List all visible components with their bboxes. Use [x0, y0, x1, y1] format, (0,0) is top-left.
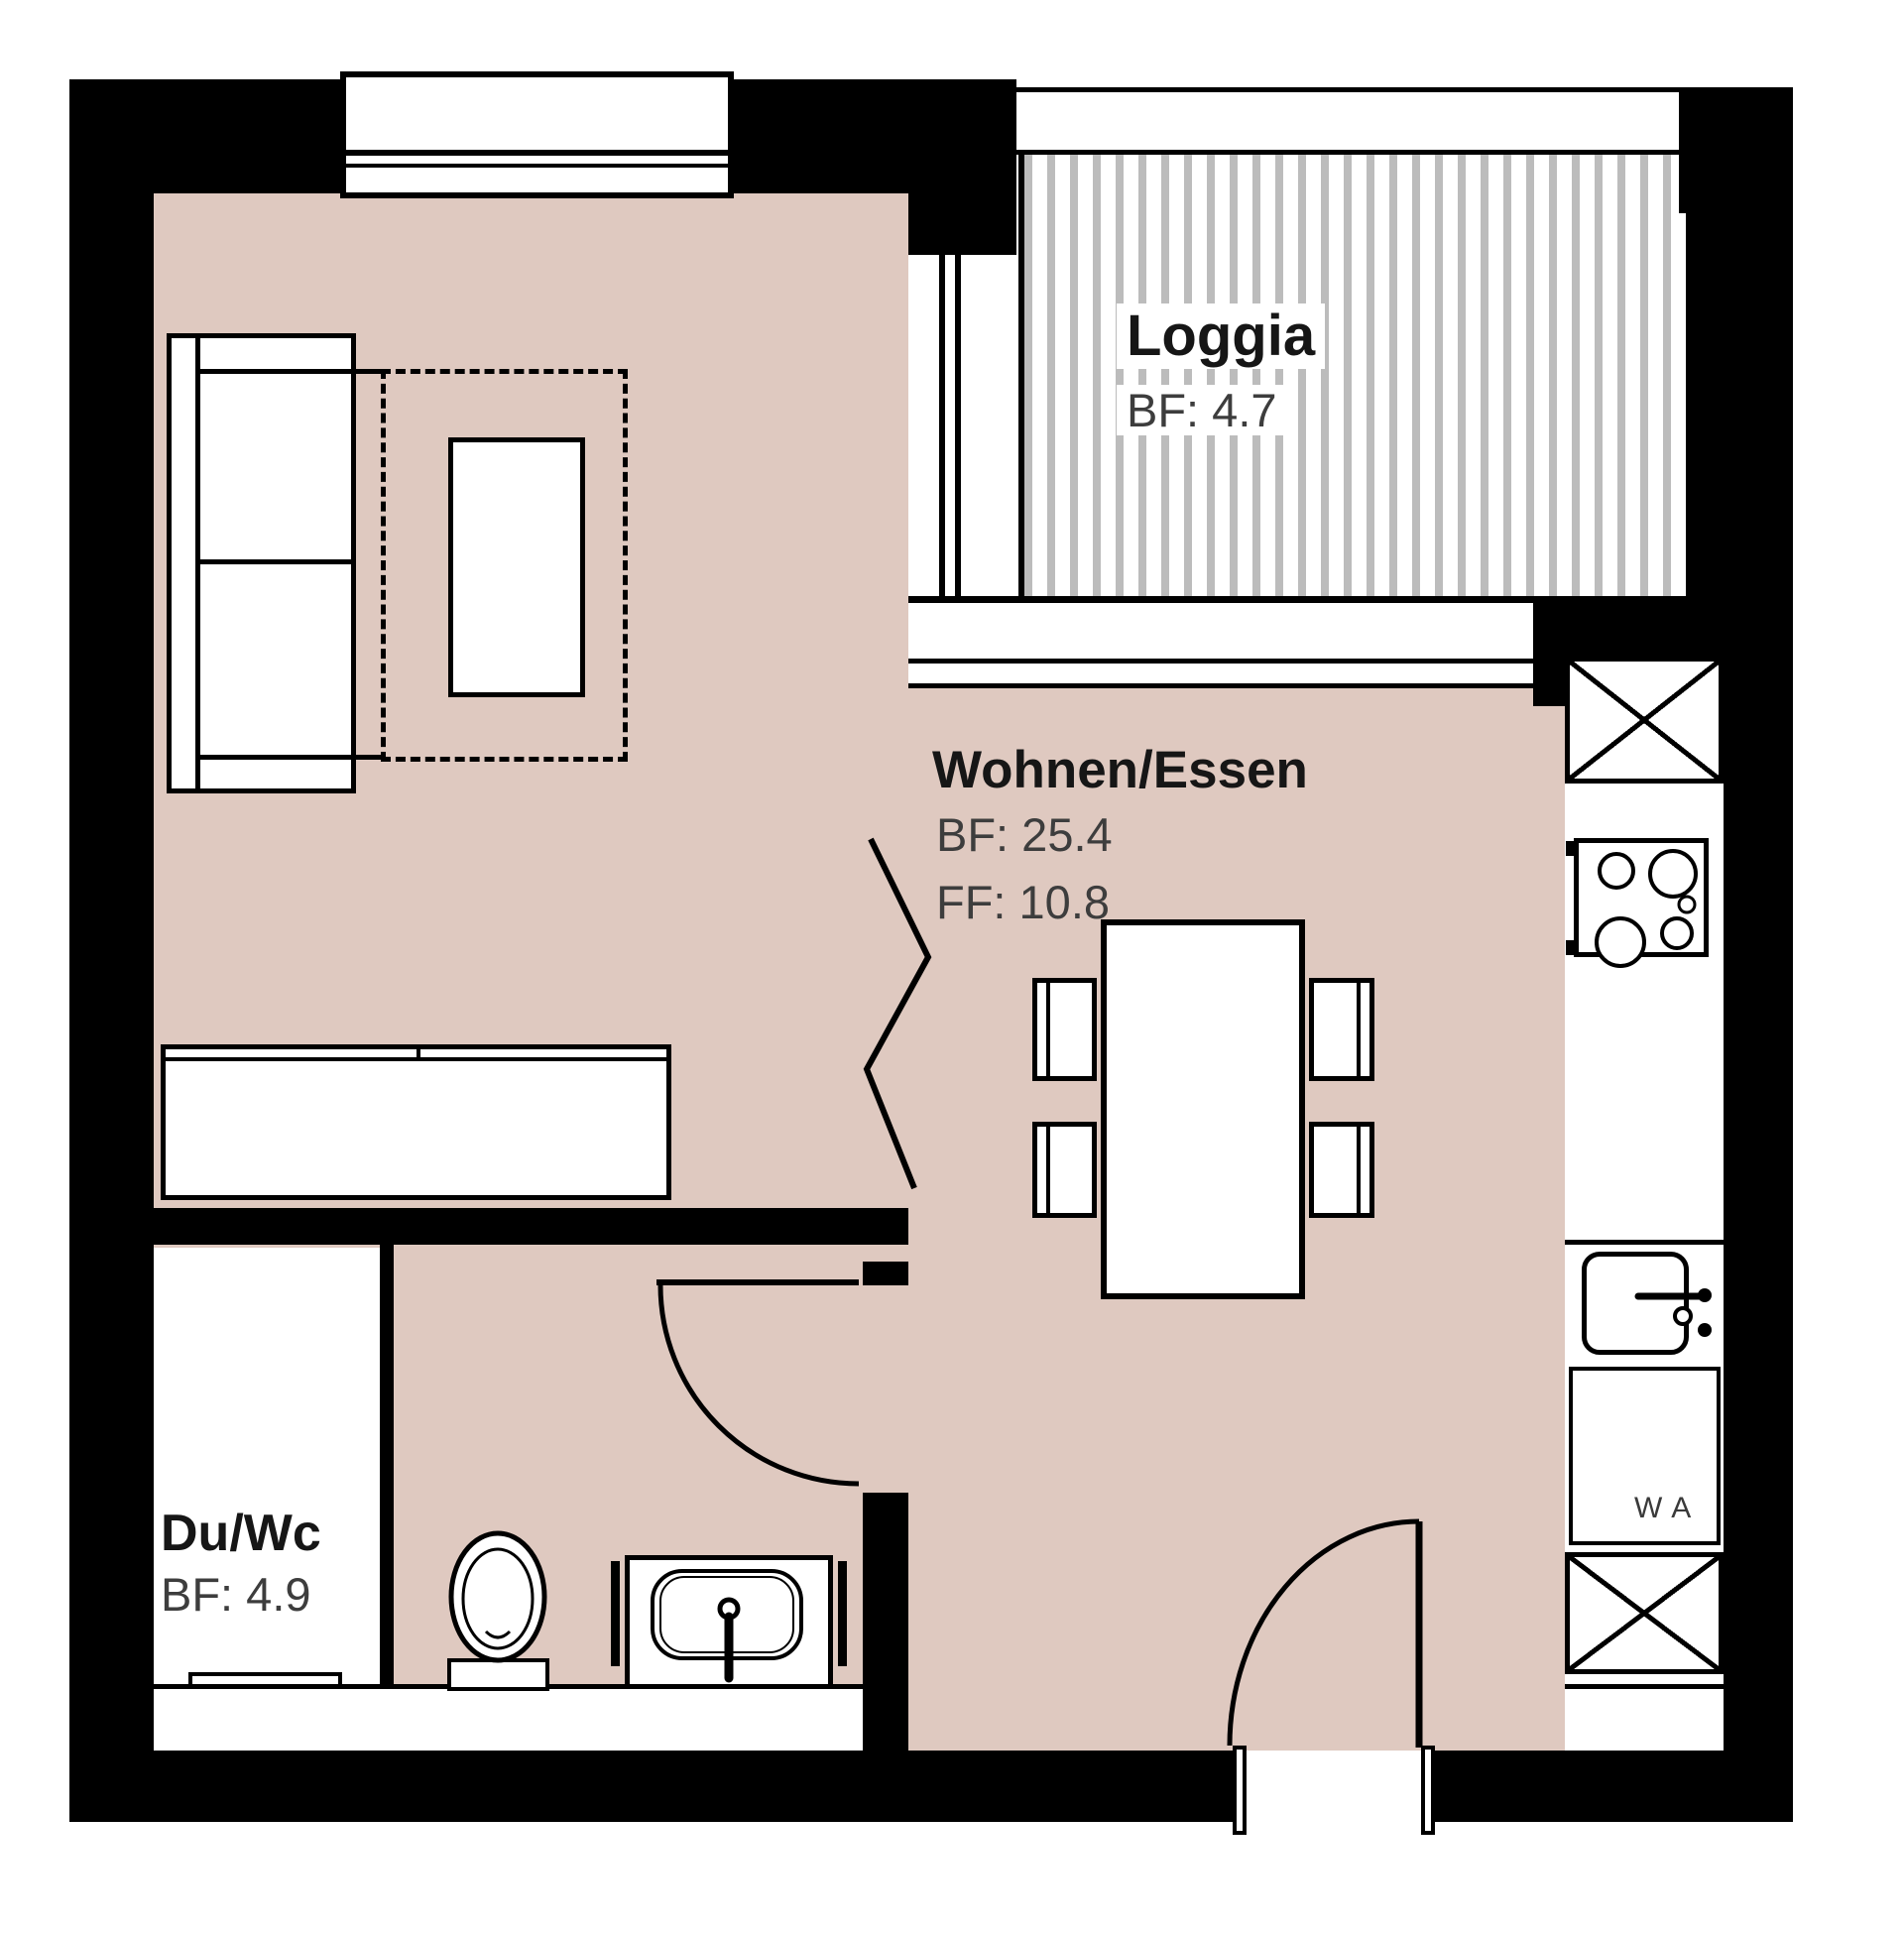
floor-plan: WA	[0, 0, 1904, 1934]
label-loggia-name: Loggia	[1117, 303, 1325, 369]
label-wohnen-bf: BF: 25.4	[936, 811, 1113, 858]
wash-basin	[653, 1571, 801, 1678]
bathroom-door	[656, 1282, 859, 1484]
label-duwc-name: Du/Wc	[161, 1508, 321, 1559]
plan-detail-layer	[0, 0, 1904, 1934]
annotation-zigzag-leader	[867, 839, 928, 1188]
label-duwc-area: BF: 4.9	[161, 1571, 311, 1618]
entrance-door	[1230, 1521, 1419, 1748]
label-wohnen-name: Wohnen/Essen	[932, 744, 1308, 796]
cooktop-burners	[1597, 851, 1696, 966]
sink-faucet	[1638, 1288, 1712, 1337]
toilet	[449, 1533, 547, 1689]
label-loggia-area: BF: 4.7	[1117, 385, 1287, 435]
label-wohnen-ff: FF: 10.8	[936, 879, 1110, 925]
